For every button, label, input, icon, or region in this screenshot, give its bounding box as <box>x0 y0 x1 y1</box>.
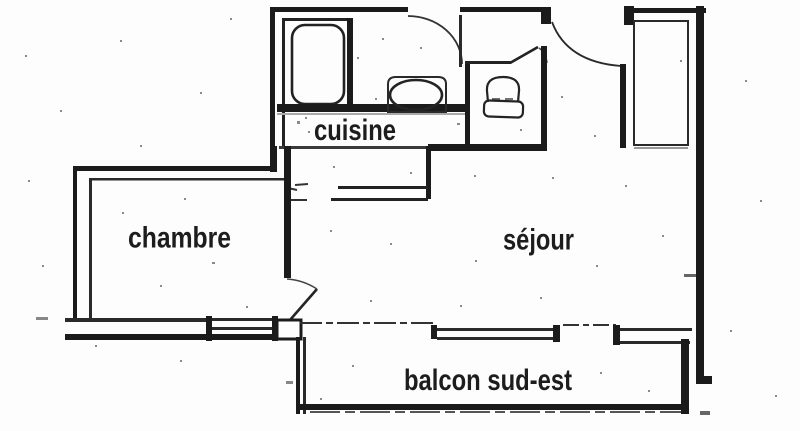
svg-text:balcon sud-est: balcon sud-est <box>404 364 572 397</box>
svg-text:cuisine: cuisine <box>314 114 396 147</box>
svg-text:séjour: séjour <box>503 224 574 257</box>
svg-text:chambre: chambre <box>128 222 231 255</box>
